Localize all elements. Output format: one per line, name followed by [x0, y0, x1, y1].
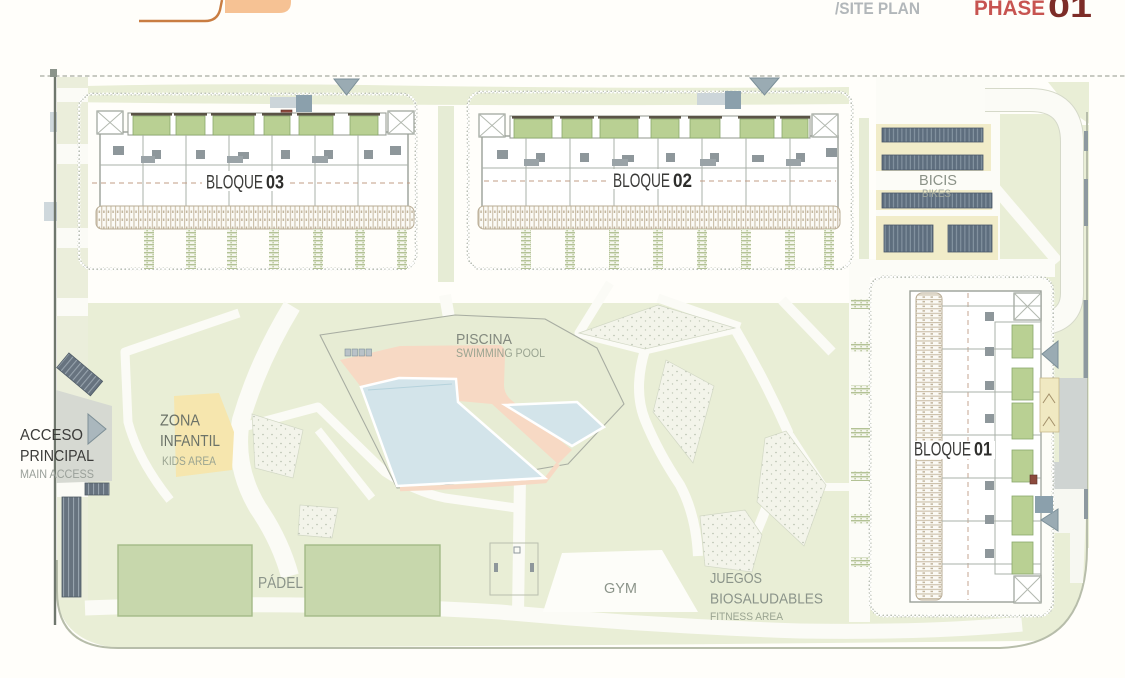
svg-text:FITNESS AREA: FITNESS AREA: [710, 611, 784, 623]
svg-text:PRINCIPAL: PRINCIPAL: [20, 448, 94, 465]
svg-text:PÁDEL: PÁDEL: [258, 575, 303, 592]
svg-text:BICIS: BICIS: [919, 172, 957, 189]
svg-text:BIOSALUDABLES: BIOSALUDABLES: [710, 592, 823, 608]
svg-text:SWIMMING POOL: SWIMMING POOL: [456, 348, 546, 360]
svg-text:BLOQUE: BLOQUE: [914, 440, 971, 461]
svg-text:/SITE PLAN: /SITE PLAN: [835, 0, 920, 18]
svg-text:INFANTIL: INFANTIL: [160, 433, 220, 450]
svg-text:02: 02: [673, 171, 692, 192]
svg-text:ZONA: ZONA: [160, 413, 201, 430]
svg-text:PHASE: PHASE: [974, 0, 1045, 20]
svg-text:01: 01: [1048, 0, 1092, 24]
svg-text:MAIN ACCESS: MAIN ACCESS: [20, 467, 94, 481]
svg-text:KIDS AREA: KIDS AREA: [162, 456, 216, 468]
svg-text:03: 03: [266, 173, 284, 194]
svg-text:BLOQUE: BLOQUE: [206, 173, 263, 194]
svg-text:01: 01: [974, 440, 992, 461]
svg-text:JUEGOS: JUEGOS: [710, 571, 762, 587]
svg-text:GYM: GYM: [604, 580, 637, 597]
svg-text:ACCESO: ACCESO: [20, 427, 83, 444]
svg-text:PISCINA: PISCINA: [456, 332, 512, 348]
svg-text:BLOQUE: BLOQUE: [613, 171, 670, 192]
svg-text:BIKES: BIKES: [922, 188, 951, 200]
